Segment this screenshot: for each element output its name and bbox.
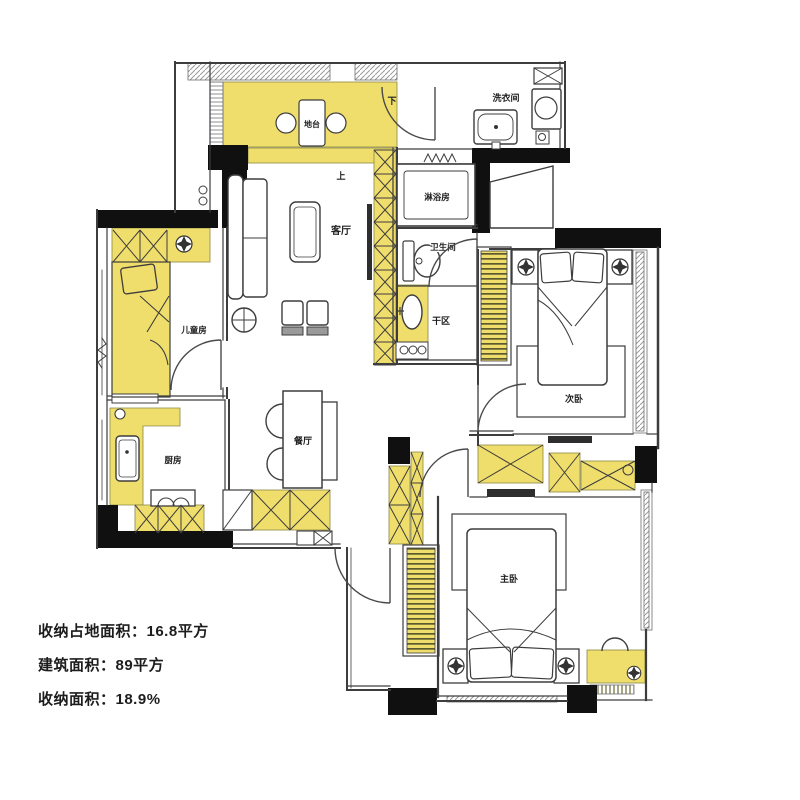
- pillow: [469, 647, 512, 679]
- window-top-right: [355, 63, 397, 80]
- sink-drain: [494, 125, 498, 129]
- door-entry: [335, 548, 390, 603]
- kitchen-sink-basin: [119, 440, 136, 477]
- room-label-dry-area: 干区: [432, 316, 450, 326]
- pillow: [540, 252, 572, 283]
- coffee-table-inner: [294, 207, 316, 257]
- toilet-flush: [416, 258, 422, 264]
- chair-back: [307, 327, 328, 335]
- door-bedroom2: [478, 384, 526, 432]
- radiator-zigzag: [424, 154, 456, 162]
- wall-block: [97, 505, 118, 548]
- sink-tap: [492, 142, 500, 149]
- washbasin: [402, 295, 422, 329]
- stat-storage-footprint: 收纳占地面积：16.8平方: [38, 620, 209, 641]
- chair: [282, 301, 303, 325]
- door-master: [420, 449, 468, 497]
- knob: [418, 346, 426, 354]
- step-down-marker: 下: [387, 96, 396, 106]
- floorplan-page: 地台 客厅 上 下 洗衣间 淋: [0, 0, 800, 800]
- dining-bench: [321, 402, 337, 480]
- wall-block: [388, 688, 437, 715]
- platform-stool: [326, 113, 346, 133]
- wall-block: [388, 437, 410, 464]
- pillow: [511, 647, 554, 679]
- window-master-hatch: [644, 492, 649, 628]
- kitchen-sink-drain: [125, 450, 129, 454]
- window-top-left: [188, 63, 330, 80]
- step-up-marker: 上: [336, 170, 345, 181]
- door-panel: [490, 166, 553, 228]
- toilet-tank: [403, 241, 414, 281]
- kitchen-drain: [115, 409, 125, 419]
- sofa-back: [228, 175, 243, 299]
- room-label-shower: 淋浴房: [424, 192, 450, 202]
- wall-block: [118, 531, 233, 548]
- kids-pillow: [120, 264, 157, 294]
- stat-building-area: 建筑面积：89平方: [38, 654, 209, 675]
- wall-block: [97, 210, 218, 228]
- washer-drum: [535, 97, 557, 119]
- drain: [199, 197, 207, 205]
- dining-sideboard: [252, 490, 330, 530]
- lamp-icon: [558, 658, 574, 674]
- hall-wardrobe: [407, 548, 435, 653]
- desk-chair: [602, 638, 628, 651]
- room-label-platform: 地台: [304, 119, 320, 129]
- area-statistics: 收纳占地面积：16.8平方 建筑面积：89平方 收纳面积：18.9%: [38, 620, 209, 722]
- room-label-dining: 餐厅: [293, 435, 312, 446]
- room-label-living: 客厅: [330, 224, 351, 237]
- room-label-kitchen: 厨房: [164, 455, 181, 465]
- room-label-kids: 儿童房: [180, 325, 207, 335]
- wall-block: [635, 446, 657, 483]
- tv: [367, 204, 372, 280]
- wall-block: [567, 685, 597, 713]
- lamp-icon: [448, 658, 464, 674]
- outlet: [539, 134, 546, 141]
- wall-block: [555, 228, 661, 248]
- room-label-bathroom: 卫生间: [430, 242, 456, 252]
- lamp-icon: [612, 259, 628, 275]
- balcony-side-hatch: [210, 82, 223, 147]
- knob: [400, 346, 408, 354]
- room-label-laundry: 洗衣间: [492, 92, 519, 103]
- lamp-icon: [627, 666, 641, 680]
- tv: [548, 436, 592, 443]
- stat-storage-ratio: 收纳面积：18.9%: [38, 688, 209, 709]
- dining-chair: [267, 448, 283, 480]
- room-label-bedroom2: 次卧: [565, 393, 583, 404]
- chair-back: [282, 327, 303, 335]
- lamp-icon: [518, 259, 534, 275]
- lamp-icon: [176, 236, 192, 252]
- entry-stool: [297, 531, 314, 545]
- room-bath: 淋浴房 卫生间 干区: [396, 154, 475, 359]
- wall-block: [208, 145, 248, 170]
- bedroom2-wardrobe: [481, 251, 507, 361]
- drain: [199, 186, 207, 194]
- pillow: [572, 252, 604, 283]
- chair: [307, 301, 328, 325]
- door-kids: [171, 340, 221, 390]
- window-bedroom2-hatch: [636, 252, 644, 431]
- dining-chair: [266, 404, 283, 438]
- tv: [487, 489, 535, 497]
- room-laundry: 洗衣间: [474, 68, 562, 149]
- room-label-master: 主卧: [500, 573, 518, 584]
- platform-stool: [276, 113, 296, 133]
- knob: [409, 346, 417, 354]
